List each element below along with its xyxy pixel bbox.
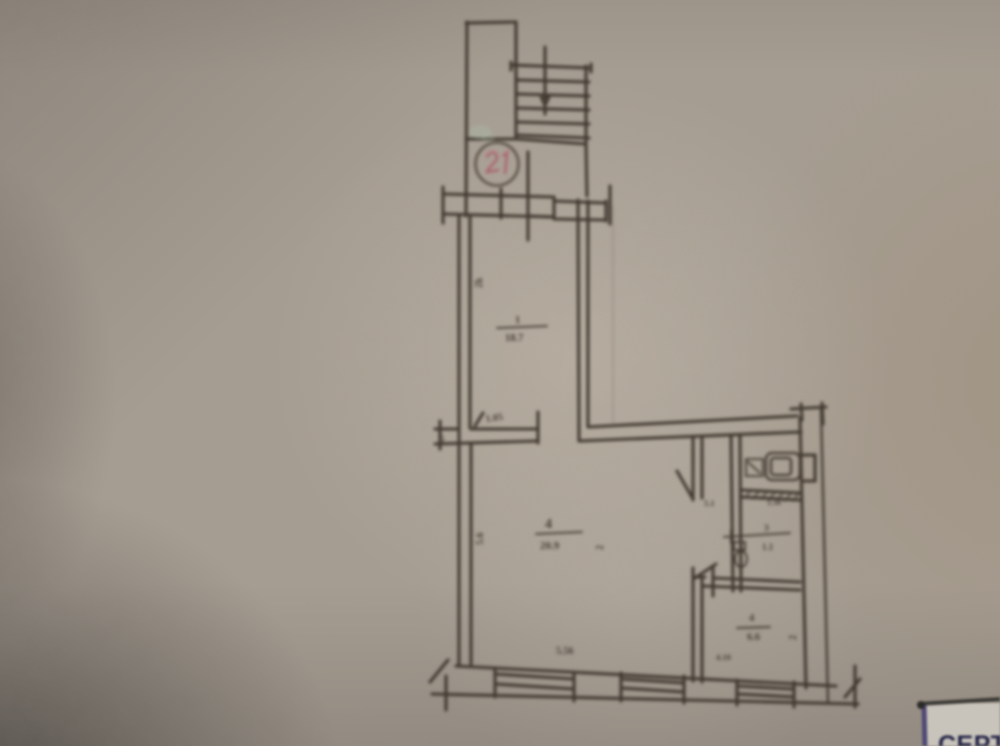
svg-text:СЕРТИ: СЕРТИ: [938, 731, 1000, 746]
